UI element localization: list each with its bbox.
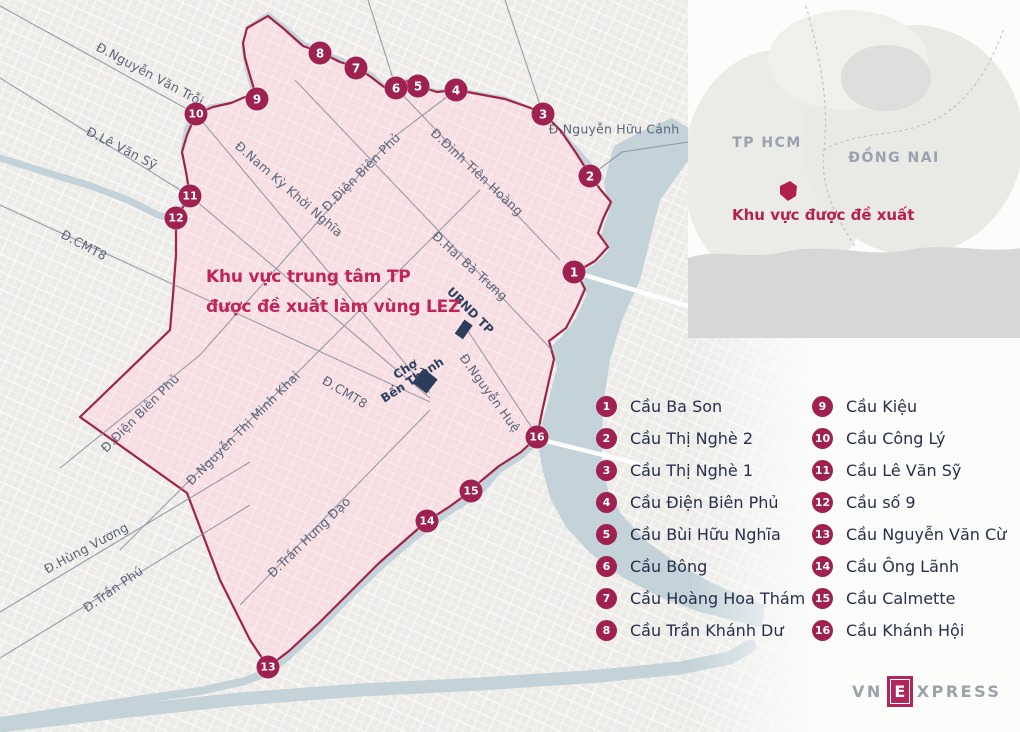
inset-note: Khu vực được đề xuất (732, 206, 914, 224)
legend-label: Cầu Bùi Hữu Nghĩa (630, 525, 781, 544)
legend-badge-6: 6 (596, 556, 617, 577)
logo-e-letter: E (894, 682, 905, 701)
logo-vn: VN (852, 682, 883, 701)
inset-map-shapes (688, 0, 1020, 338)
legend-item-15: 15Cầu Calmette (812, 582, 1006, 614)
bridge-marker-16: 16 (526, 426, 549, 449)
legend-badge-8: 8 (596, 620, 617, 641)
legend-badge-13: 13 (812, 524, 833, 545)
legend-label: Cầu Điện Biên Phủ (630, 493, 779, 512)
legend-item-16: 16Cầu Khánh Hội (812, 614, 1006, 646)
legend-item-7: 7Cầu Hoàng Hoa Thám (596, 582, 805, 614)
legend-badge-5: 5 (596, 524, 617, 545)
legend-badge-15: 15 (812, 588, 833, 609)
bridge-marker-5: 5 (407, 75, 430, 98)
logo-xpress: XPRESS (917, 682, 1002, 701)
map-title-line2: được đề xuất làm vùng LEZ (206, 292, 460, 322)
bridge-marker-13: 13 (257, 656, 280, 679)
bridge-marker-2: 2 (579, 165, 602, 188)
legend-label: Cầu Ông Lãnh (846, 557, 959, 576)
bridge-marker-1: 1 (563, 261, 586, 284)
logo-e-box: E (887, 676, 913, 707)
legend-item-13: 13Cầu Nguyễn Văn Cừ (812, 518, 1006, 550)
legend-item-9: 9Cầu Kiệu (812, 390, 1006, 422)
legend-column-2: 9Cầu Kiệu10Cầu Công Lý11Cầu Lê Văn Sỹ12C… (812, 390, 1006, 646)
legend-label: Cầu Ba Son (630, 397, 722, 416)
legend-badge-11: 11 (812, 460, 833, 481)
legend-item-3: 3Cầu Thị Nghè 1 (596, 454, 805, 486)
map-title-line1: Khu vực trung tâm TP (206, 262, 460, 292)
inset-label-dongnai: ĐỒNG NAI (848, 150, 939, 166)
legend-badge-10: 10 (812, 428, 833, 449)
bridge-marker-7: 7 (345, 57, 368, 80)
legend-item-2: 2Cầu Thị Nghè 2 (596, 422, 805, 454)
bridge-marker-12: 12 (165, 207, 188, 230)
legend-badge-3: 3 (596, 460, 617, 481)
legend-badge-7: 7 (596, 588, 617, 609)
bridge-marker-14: 14 (416, 510, 439, 533)
legend-item-12: 12Cầu số 9 (812, 486, 1006, 518)
bridge-marker-11: 11 (179, 185, 202, 208)
bridge-marker-10: 10 (185, 103, 208, 126)
street-label: Đ.Nguyễn Hữu Cảnh (549, 122, 680, 137)
vnexpress-logo: VN E XPRESS (852, 676, 1001, 707)
legend-label: Cầu Nguyễn Văn Cừ (846, 525, 1006, 544)
legend-badge-2: 2 (596, 428, 617, 449)
legend-item-4: 4Cầu Điện Biên Phủ (596, 486, 805, 518)
bridge-marker-8: 8 (309, 42, 332, 65)
bridge-marker-9: 9 (246, 88, 269, 111)
legend-badge-16: 16 (812, 620, 833, 641)
legend-column-1: 1Cầu Ba Son2Cầu Thị Nghè 23Cầu Thị Nghè … (596, 390, 805, 646)
legend-label: Cầu Bông (630, 557, 707, 576)
inset-map: TP HCM ĐỒNG NAI Khu vực được đề xuất (688, 0, 1020, 338)
bridge-marker-3: 3 (532, 103, 555, 126)
legend-item-14: 14Cầu Ông Lãnh (812, 550, 1006, 582)
legend-label: Cầu Trần Khánh Dư (630, 621, 784, 640)
map-title: Khu vực trung tâm TP được đề xuất làm vù… (206, 262, 460, 322)
legend-label: Cầu số 9 (846, 493, 916, 512)
legend-label: Cầu Kiệu (846, 397, 917, 416)
legend-item-10: 10Cầu Công Lý (812, 422, 1006, 454)
bridge-marker-6: 6 (385, 77, 408, 100)
inset-label-tphcm: TP HCM (732, 135, 802, 151)
legend-label: Cầu Calmette (846, 589, 955, 608)
legend-label: Cầu Công Lý (846, 429, 945, 448)
legend-label: Cầu Thị Nghè 2 (630, 429, 753, 448)
legend-badge-14: 14 (812, 556, 833, 577)
legend-badge-9: 9 (812, 396, 833, 417)
legend-badge-12: 12 (812, 492, 833, 513)
legend-label: Cầu Lê Văn Sỹ (846, 461, 961, 480)
legend-item-1: 1Cầu Ba Son (596, 390, 805, 422)
legend-badge-1: 1 (596, 396, 617, 417)
legend-label: Cầu Hoàng Hoa Thám (630, 589, 805, 608)
bridge-marker-15: 15 (460, 480, 483, 503)
legend-item-6: 6Cầu Bông (596, 550, 805, 582)
map-canvas: Đ.Nguyễn Văn TrỗiĐ.Lê Văn SỹĐ.CMT8Đ.Nam … (0, 0, 1020, 732)
legend-item-8: 8Cầu Trần Khánh Dư (596, 614, 805, 646)
legend-label: Cầu Khánh Hội (846, 621, 964, 640)
legend-label: Cầu Thị Nghè 1 (630, 461, 753, 480)
legend-item-5: 5Cầu Bùi Hữu Nghĩa (596, 518, 805, 550)
bridge-marker-4: 4 (445, 79, 468, 102)
legend-badge-4: 4 (596, 492, 617, 513)
legend-item-11: 11Cầu Lê Văn Sỹ (812, 454, 1006, 486)
